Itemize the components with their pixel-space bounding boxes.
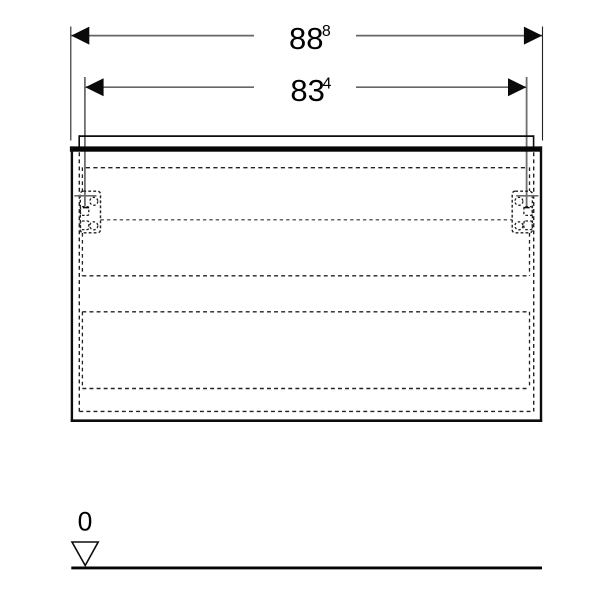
svg-text:0: 0 [78, 507, 93, 537]
svg-text:83: 83 [290, 73, 324, 108]
svg-text:8: 8 [322, 23, 331, 40]
svg-text:88: 88 [289, 21, 323, 56]
svg-text:4: 4 [323, 76, 332, 93]
